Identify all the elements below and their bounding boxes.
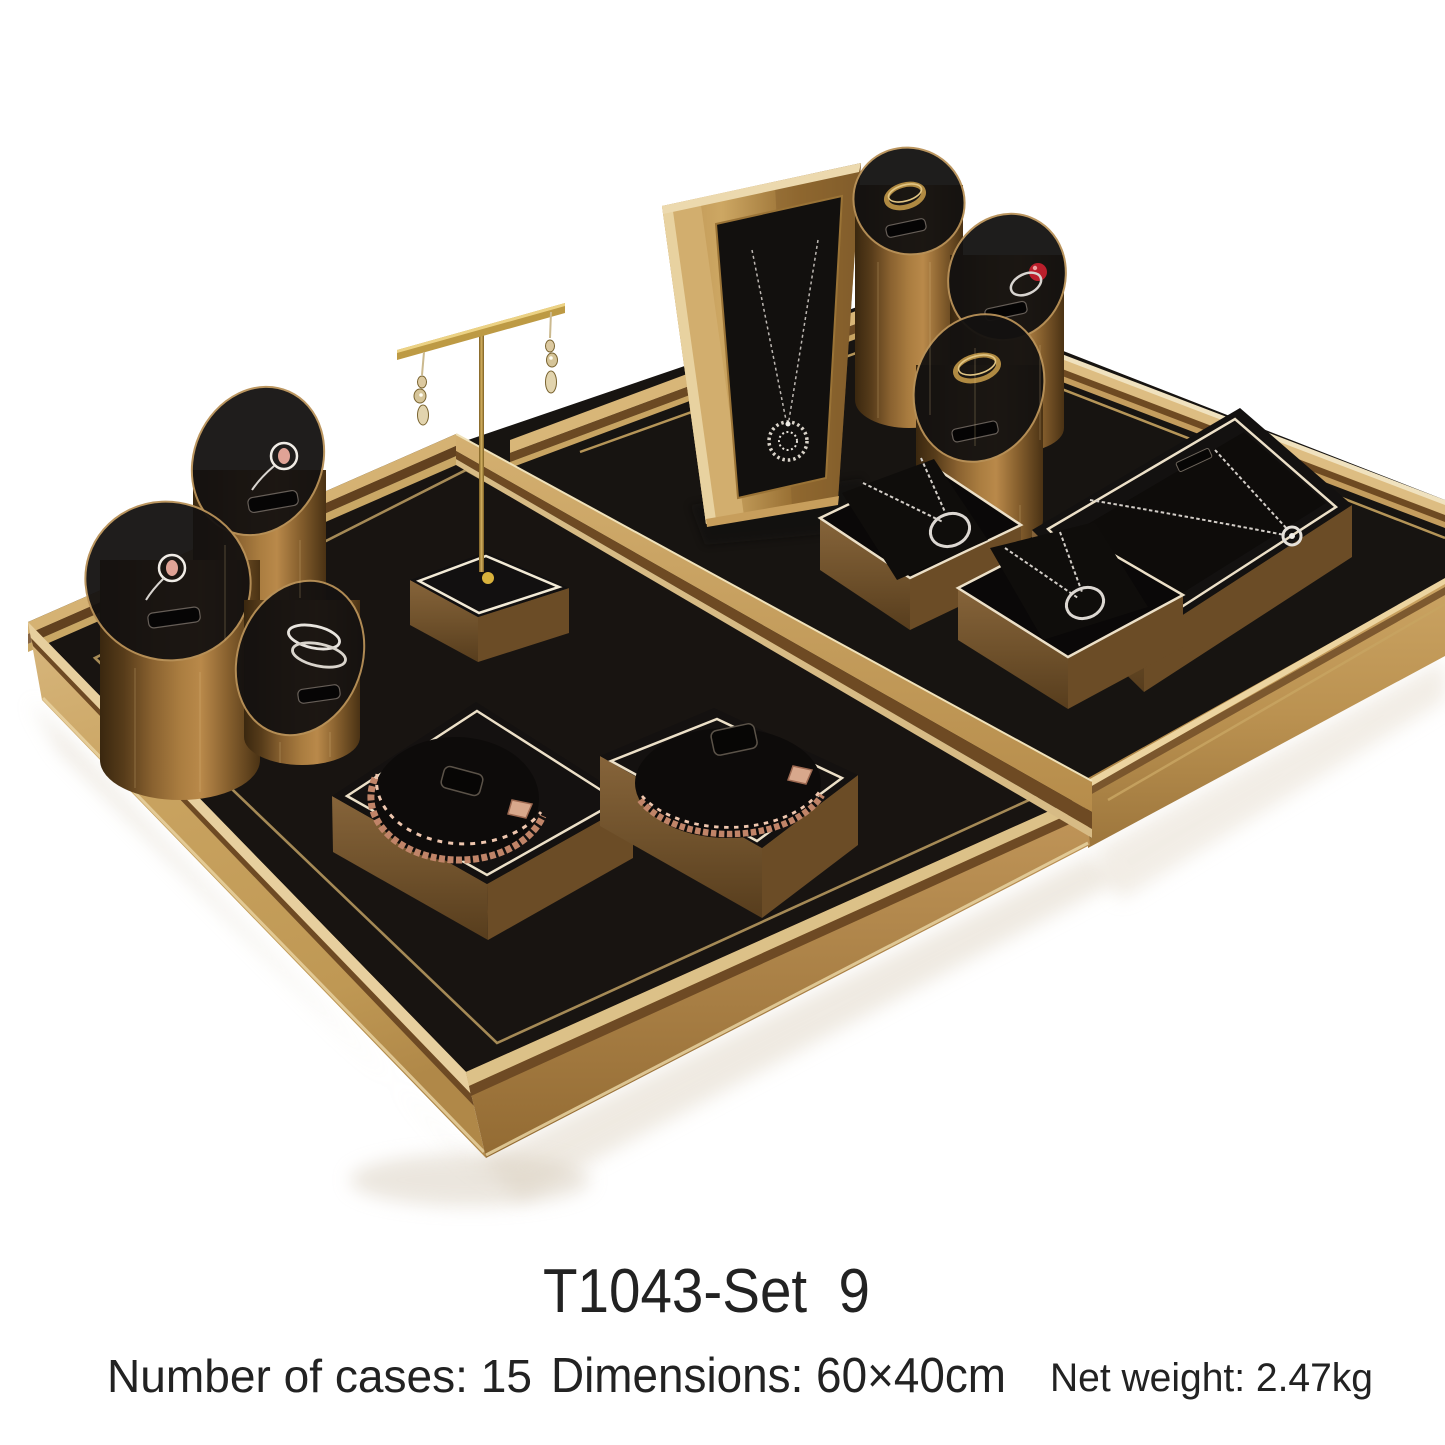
svg-text:T1043-Set 9: T1043-Set 9 — [543, 1257, 870, 1326]
svg-text:Dimensions: 60×40cm: Dimensions: 60×40cm — [551, 1349, 1006, 1403]
svg-text:Number of cases: 15: Number of cases: 15 — [107, 1350, 532, 1402]
svg-text:Net weight: 2.47kg: Net weight: 2.47kg — [1050, 1356, 1373, 1400]
